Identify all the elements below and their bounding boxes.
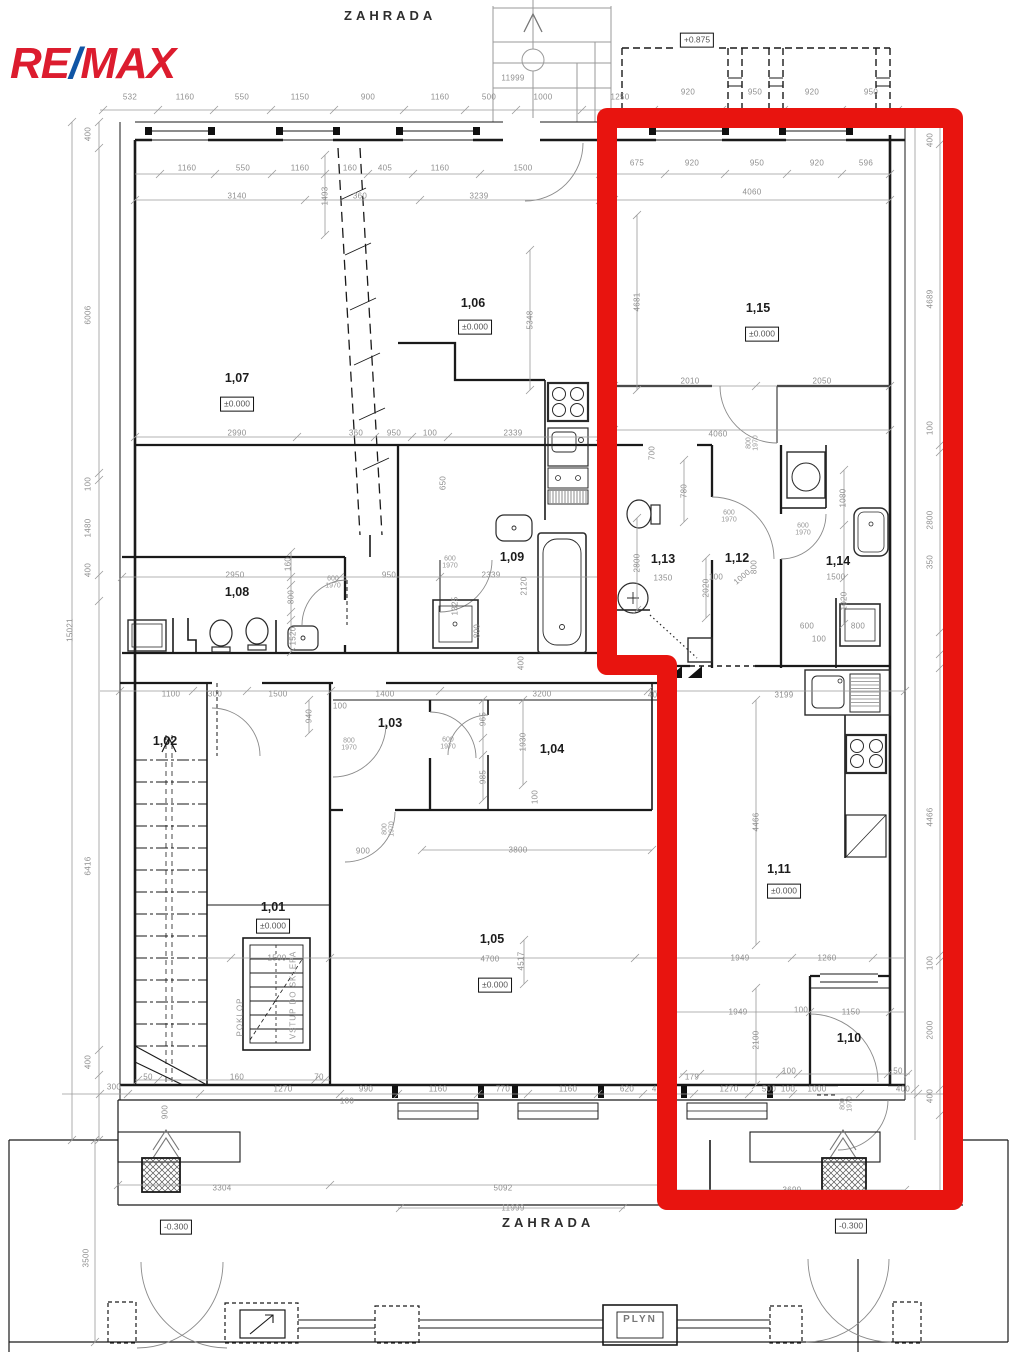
floorplan-page: RE/MAX ZAHRADA ZAHRADA PLYN 1,07±0.0001,… [0,0,1024,1352]
highlight-layer [0,0,1024,1352]
highlight-outline [607,118,953,1200]
